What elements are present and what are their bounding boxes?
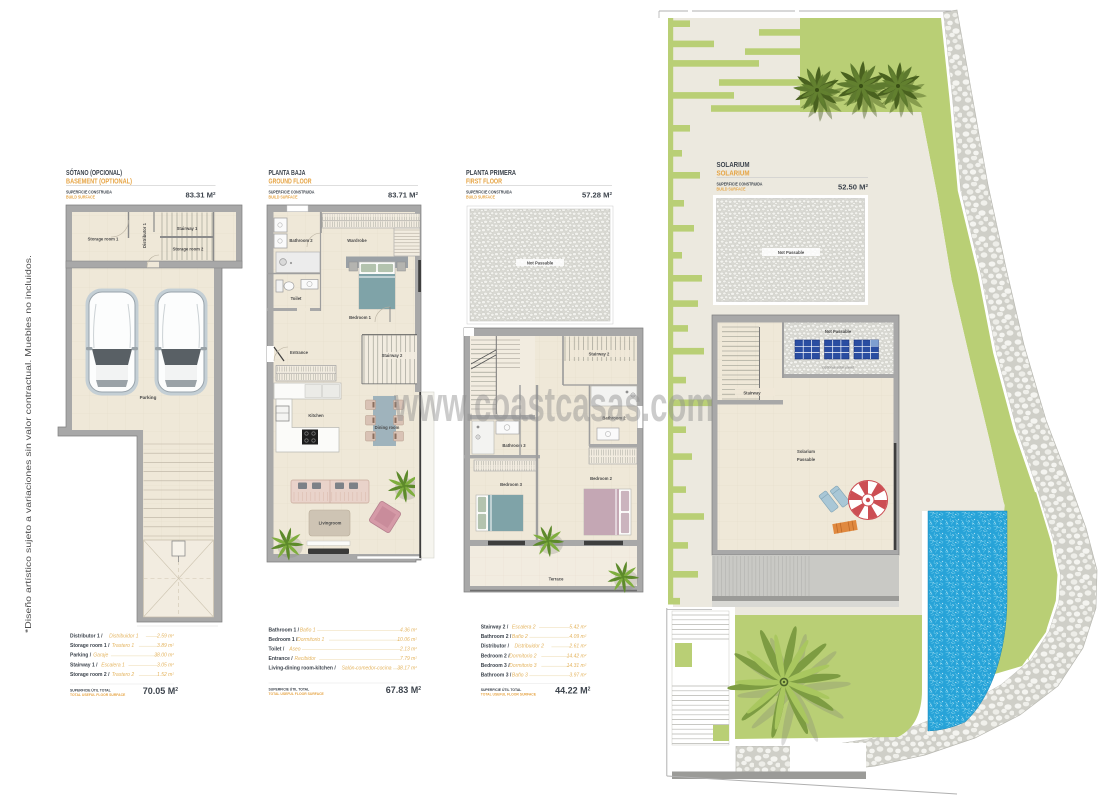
svg-text:BUILD SURFACE: BUILD SURFACE bbox=[466, 194, 495, 199]
svg-text:4.36 m2: 4.36 m2 bbox=[400, 627, 417, 634]
svg-text:Not Passable: Not Passable bbox=[527, 261, 554, 266]
svg-text:7.79 m2: 7.79 m2 bbox=[400, 656, 417, 663]
svg-text:Parking /: Parking / bbox=[70, 653, 92, 659]
svg-text:Passable: Passable bbox=[797, 457, 816, 462]
svg-text:Bedroom 1: Bedroom 1 bbox=[349, 315, 372, 320]
svg-text:3.97 m2: 3.97 m2 bbox=[569, 672, 586, 679]
svg-text:1.52 m2: 1.52 m2 bbox=[157, 672, 174, 679]
svg-text:Optional solar panel: Optional solar panel bbox=[822, 366, 854, 370]
svg-text:Storage room 2 /: Storage room 2 / bbox=[70, 672, 110, 678]
svg-text:Trastero 1: Trastero 1 bbox=[112, 643, 135, 649]
svg-text:BUILD SURFACE: BUILD SURFACE bbox=[717, 186, 746, 191]
svg-text:Toilet /: Toilet / bbox=[269, 647, 285, 653]
svg-text:14.42 m2: 14.42 m2 bbox=[567, 653, 587, 660]
svg-text:Living-dining room-kitchen /: Living-dining room-kitchen / bbox=[269, 666, 337, 672]
svg-text:Trastero 2: Trastero 2 bbox=[112, 672, 135, 678]
svg-text:Distributor /: Distributor / bbox=[481, 644, 510, 650]
svg-text:TOTAL USEFUL FLOOR SURFACE: TOTAL USEFUL FLOOR SURFACE bbox=[481, 693, 537, 697]
svg-text:TOTAL USEFUL FLOOR SURFACE: TOTAL USEFUL FLOOR SURFACE bbox=[70, 693, 126, 697]
svg-text:67.83 M2: 67.83 M2 bbox=[386, 685, 422, 695]
svg-text:Aseo: Aseo bbox=[288, 647, 301, 653]
svg-text:TOTAL USEFUL FLOOR SURFACE: TOTAL USEFUL FLOOR SURFACE bbox=[269, 692, 325, 696]
svg-text:*Diseño artístico sujeto a var: *Diseño artístico sujeto a variaciones s… bbox=[24, 255, 33, 633]
svg-text:14.31 m2: 14.31 m2 bbox=[567, 663, 587, 670]
svg-text:SUPERFICIE ÚTIL TOTAL: SUPERFICIE ÚTIL TOTAL bbox=[70, 688, 111, 693]
svg-text:Bathroom 1 /: Bathroom 1 / bbox=[269, 627, 300, 633]
svg-text:Distributor 1 /: Distributor 1 / bbox=[70, 633, 103, 639]
svg-text:Escalera 1: Escalera 1 bbox=[101, 662, 125, 668]
svg-text:Bathroom 2 /: Bathroom 2 / bbox=[481, 634, 512, 640]
svg-text:Bathroom 3 /: Bathroom 3 / bbox=[481, 673, 512, 679]
svg-text:Dormitorio 3: Dormitorio 3 bbox=[509, 663, 536, 669]
svg-text:Kitchen: Kitchen bbox=[308, 413, 324, 418]
svg-text:Entrance /: Entrance / bbox=[269, 656, 294, 662]
svg-text:38.17 m2: 38.17 m2 bbox=[397, 665, 417, 672]
svg-text:Distribuidor 1: Distribuidor 1 bbox=[109, 633, 139, 639]
svg-text:Salón-comedor-cocina: Salón-comedor-cocina bbox=[342, 666, 392, 672]
svg-text:Storage room 2: Storage room 2 bbox=[173, 247, 204, 252]
svg-text:www.coastcasas.com: www.coastcasas.com bbox=[393, 378, 714, 432]
svg-text:SUPERFICIE ÚTIL TOTAL: SUPERFICIE ÚTIL TOTAL bbox=[481, 687, 522, 692]
svg-text:Stairway 1: Stairway 1 bbox=[177, 226, 198, 231]
svg-text:Bathroom 3: Bathroom 3 bbox=[502, 443, 526, 448]
svg-text:70.05 M2: 70.05 M2 bbox=[143, 686, 179, 696]
svg-text:Bathroom 2: Bathroom 2 bbox=[289, 238, 313, 243]
svg-text:BASEMENT (OPTIONAL): BASEMENT (OPTIONAL) bbox=[66, 176, 132, 185]
svg-text:Stairway 2: Stairway 2 bbox=[589, 352, 610, 357]
svg-text:52.50 M2: 52.50 M2 bbox=[838, 182, 868, 191]
svg-text:44.22 M2: 44.22 M2 bbox=[555, 685, 591, 695]
svg-text:Dormitorio 1: Dormitorio 1 bbox=[297, 637, 324, 643]
svg-text:Not Passable: Not Passable bbox=[825, 329, 852, 334]
svg-text:FIRST FLOOR: FIRST FLOOR bbox=[466, 176, 503, 185]
svg-text:83.31 M2: 83.31 M2 bbox=[185, 190, 215, 199]
svg-text:38.00 m2: 38.00 m2 bbox=[154, 652, 174, 659]
svg-text:Storage room 1: Storage room 1 bbox=[88, 237, 119, 242]
svg-text:2.59 m2: 2.59 m2 bbox=[156, 633, 174, 640]
svg-text:3.89 m2: 3.89 m2 bbox=[157, 643, 174, 650]
svg-text:BUILD SURFACE: BUILD SURFACE bbox=[66, 194, 95, 199]
svg-text:Parking: Parking bbox=[140, 395, 157, 400]
svg-text:4.09 m2: 4.09 m2 bbox=[569, 634, 586, 641]
svg-text:10.06 m2: 10.06 m2 bbox=[397, 636, 417, 643]
svg-text:Bedroom 3 /: Bedroom 3 / bbox=[481, 663, 511, 669]
svg-text:2.13 m2: 2.13 m2 bbox=[399, 646, 417, 653]
svg-text:2.61 m2: 2.61 m2 bbox=[568, 643, 586, 650]
svg-text:Distribuidor 2: Distribuidor 2 bbox=[515, 644, 545, 650]
svg-text:Not Passable: Not Passable bbox=[778, 250, 805, 255]
svg-text:Baño 2: Baño 2 bbox=[512, 634, 528, 640]
svg-text:Livingroom: Livingroom bbox=[319, 521, 342, 526]
svg-text:Stairway 1 /: Stairway 1 / bbox=[70, 662, 98, 668]
svg-text:GROUND FLOOR: GROUND FLOOR bbox=[269, 176, 313, 185]
svg-text:Terrace: Terrace bbox=[549, 577, 564, 582]
svg-text:Stairway 2: Stairway 2 bbox=[382, 353, 403, 358]
svg-text:Baño 3: Baño 3 bbox=[512, 673, 528, 679]
svg-text:Bedroom 1 /: Bedroom 1 / bbox=[269, 637, 299, 643]
svg-text:Bedroom 2 /: Bedroom 2 / bbox=[481, 653, 511, 659]
svg-text:Garaje: Garaje bbox=[93, 653, 108, 659]
svg-text:Storage room 1 /: Storage room 1 / bbox=[70, 643, 110, 649]
svg-text:Wardrobe: Wardrobe bbox=[347, 238, 367, 243]
svg-text:Escalera 2: Escalera 2 bbox=[512, 624, 536, 630]
svg-text:SUPERFICIE ÚTIL TOTAL: SUPERFICIE ÚTIL TOTAL bbox=[269, 687, 310, 692]
svg-text:Stairway: Stairway bbox=[743, 391, 761, 396]
svg-text:5.42 m2: 5.42 m2 bbox=[569, 624, 586, 631]
svg-text:SOLARIUM: SOLARIUM bbox=[717, 168, 750, 177]
svg-text:Recibidor: Recibidor bbox=[295, 656, 316, 662]
svg-text:Stairway 2 /: Stairway 2 / bbox=[481, 624, 509, 630]
svg-text:Dormitorio 2: Dormitorio 2 bbox=[509, 653, 536, 659]
svg-text:3.05 m2: 3.05 m2 bbox=[157, 662, 174, 669]
svg-text:83.71 M2: 83.71 M2 bbox=[388, 190, 418, 199]
svg-text:Entrance: Entrance bbox=[290, 350, 309, 355]
svg-text:BUILD SURFACE: BUILD SURFACE bbox=[269, 194, 298, 199]
svg-text:57.28 M2: 57.28 M2 bbox=[582, 190, 612, 199]
svg-text:Distributor 1: Distributor 1 bbox=[142, 222, 147, 248]
svg-text:Toilet: Toilet bbox=[291, 296, 302, 301]
svg-text:Bedroom 2: Bedroom 2 bbox=[590, 476, 613, 481]
svg-text:Baño 1: Baño 1 bbox=[300, 627, 316, 633]
svg-text:Solarium: Solarium bbox=[797, 449, 815, 454]
svg-text:Bedroom 3: Bedroom 3 bbox=[500, 482, 523, 487]
